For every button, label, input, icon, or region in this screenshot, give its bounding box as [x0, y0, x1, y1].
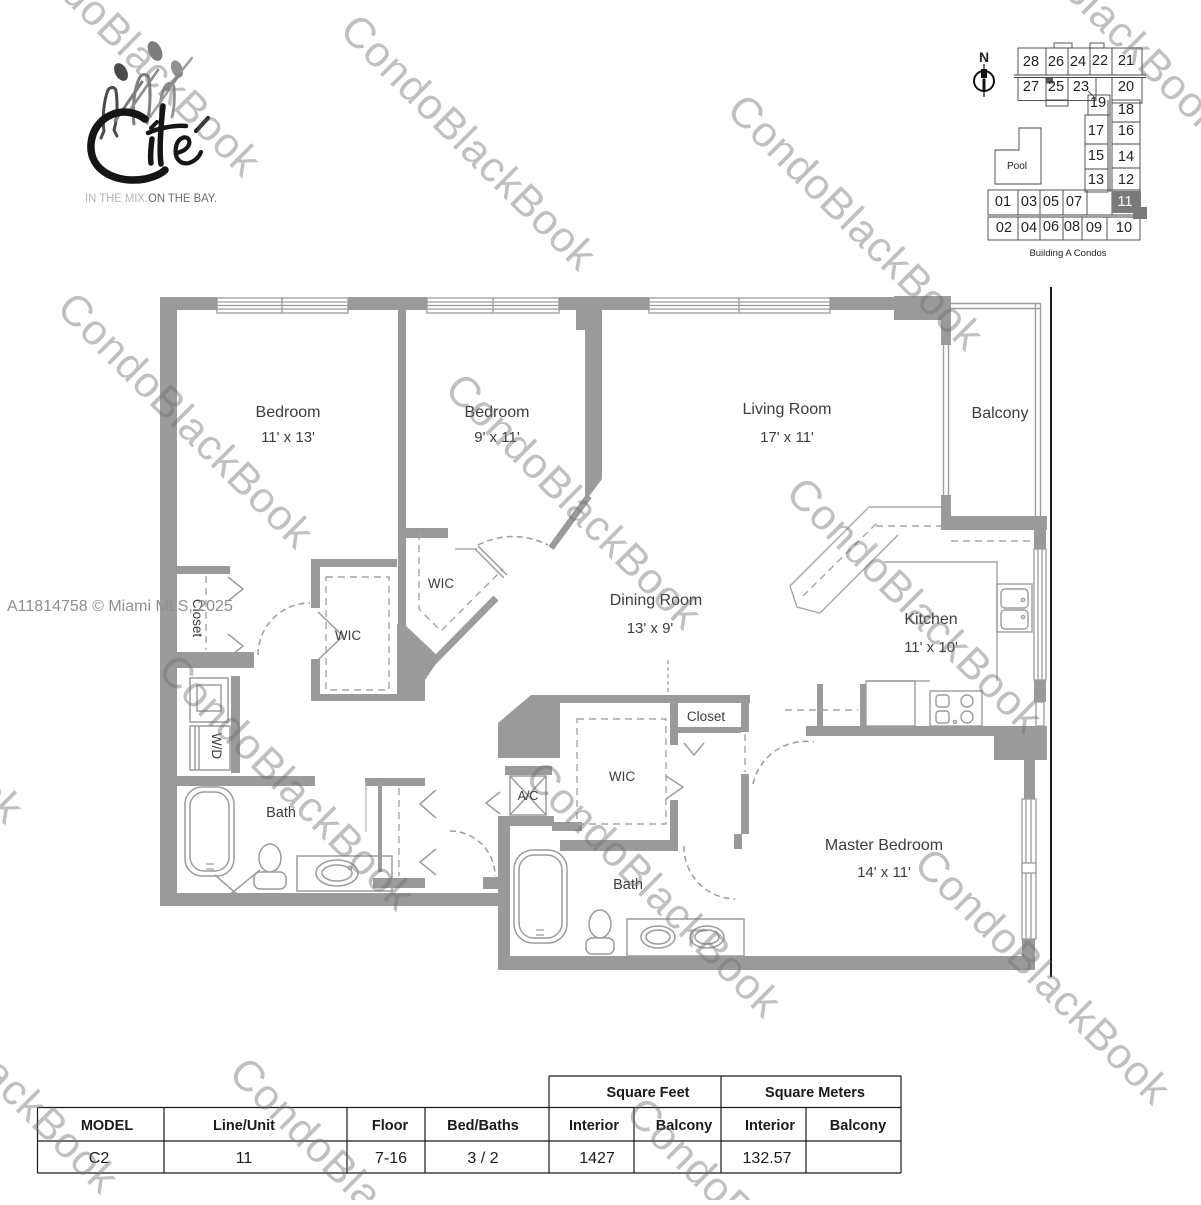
- svg-text:24: 24: [1070, 54, 1086, 70]
- svg-text:19: 19: [1090, 95, 1106, 111]
- svg-text:Living Room: Living Room: [743, 401, 832, 418]
- svg-text:11: 11: [1117, 194, 1132, 210]
- svg-text:3 / 2: 3 / 2: [467, 1150, 498, 1167]
- svg-text:25: 25: [1048, 79, 1064, 95]
- svg-text:28: 28: [1023, 54, 1039, 70]
- svg-text:05: 05: [1043, 194, 1059, 210]
- svg-text:WIC: WIC: [428, 576, 454, 591]
- svg-text:Bedroom: Bedroom: [256, 404, 321, 421]
- svg-text:N: N: [979, 49, 989, 65]
- svg-text:12: 12: [1118, 172, 1134, 188]
- svg-text:Floor: Floor: [372, 1118, 409, 1134]
- svg-text:Bed/Baths: Bed/Baths: [447, 1118, 519, 1134]
- svg-text:Pool: Pool: [1007, 161, 1027, 172]
- svg-text:16: 16: [1118, 123, 1134, 139]
- svg-text:01: 01: [995, 194, 1011, 210]
- svg-text:Building A Condos: Building A Condos: [1029, 248, 1106, 259]
- svg-text:Closet: Closet: [687, 709, 726, 724]
- svg-text:23: 23: [1073, 79, 1089, 95]
- svg-text:WIC: WIC: [609, 769, 635, 784]
- svg-text:Balcony: Balcony: [972, 405, 1029, 422]
- svg-text:02: 02: [996, 220, 1012, 236]
- svg-text:07: 07: [1066, 194, 1082, 210]
- svg-text:14' x 11': 14' x 11': [857, 864, 911, 881]
- svg-text:Interior: Interior: [569, 1118, 619, 1134]
- svg-text:Interior: Interior: [745, 1118, 795, 1134]
- svg-text:17' x 11': 17' x 11': [760, 429, 814, 446]
- svg-text:13: 13: [1088, 172, 1104, 188]
- svg-text:06: 06: [1043, 219, 1059, 235]
- svg-text:10: 10: [1116, 220, 1132, 236]
- svg-text:IN THE MIX.ON THE BAY.: IN THE MIX.ON THE BAY.: [85, 191, 217, 205]
- svg-text:132.57: 132.57: [743, 1150, 792, 1167]
- svg-text:15: 15: [1088, 148, 1104, 164]
- svg-text:08: 08: [1064, 219, 1080, 235]
- svg-text:11' x 13': 11' x 13': [261, 429, 315, 446]
- svg-text:27: 27: [1023, 79, 1039, 95]
- svg-text:09: 09: [1086, 220, 1102, 236]
- svg-text:26: 26: [1048, 54, 1064, 70]
- svg-text:11: 11: [236, 1150, 253, 1167]
- svg-text:A11814758 © Miami MLS, 2025: A11814758 © Miami MLS, 2025: [7, 598, 233, 615]
- svg-text:7-16: 7-16: [375, 1150, 407, 1167]
- svg-text:22: 22: [1092, 53, 1108, 69]
- svg-text:20: 20: [1118, 79, 1134, 95]
- svg-text:17: 17: [1088, 123, 1104, 139]
- svg-text:WIC: WIC: [335, 628, 361, 643]
- svg-text:14: 14: [1118, 149, 1134, 165]
- svg-text:04: 04: [1021, 220, 1037, 236]
- svg-text:18: 18: [1118, 102, 1134, 118]
- svg-text:1427: 1427: [579, 1150, 615, 1167]
- svg-text:03: 03: [1021, 194, 1037, 210]
- svg-text:Square Meters: Square Meters: [765, 1085, 865, 1101]
- svg-text:Balcony: Balcony: [830, 1118, 886, 1134]
